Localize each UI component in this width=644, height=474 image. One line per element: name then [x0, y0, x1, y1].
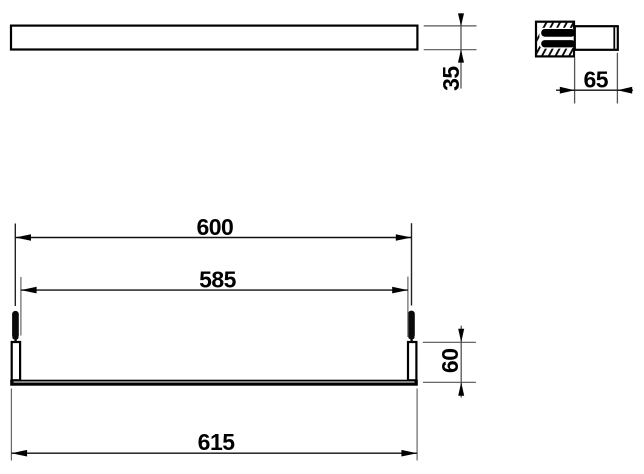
svg-text:65: 65: [584, 66, 609, 92]
svg-text:615: 615: [198, 429, 236, 455]
svg-text:600: 600: [196, 214, 233, 240]
svg-text:60: 60: [437, 349, 463, 374]
svg-text:35: 35: [438, 66, 464, 91]
svg-text:585: 585: [199, 267, 237, 293]
